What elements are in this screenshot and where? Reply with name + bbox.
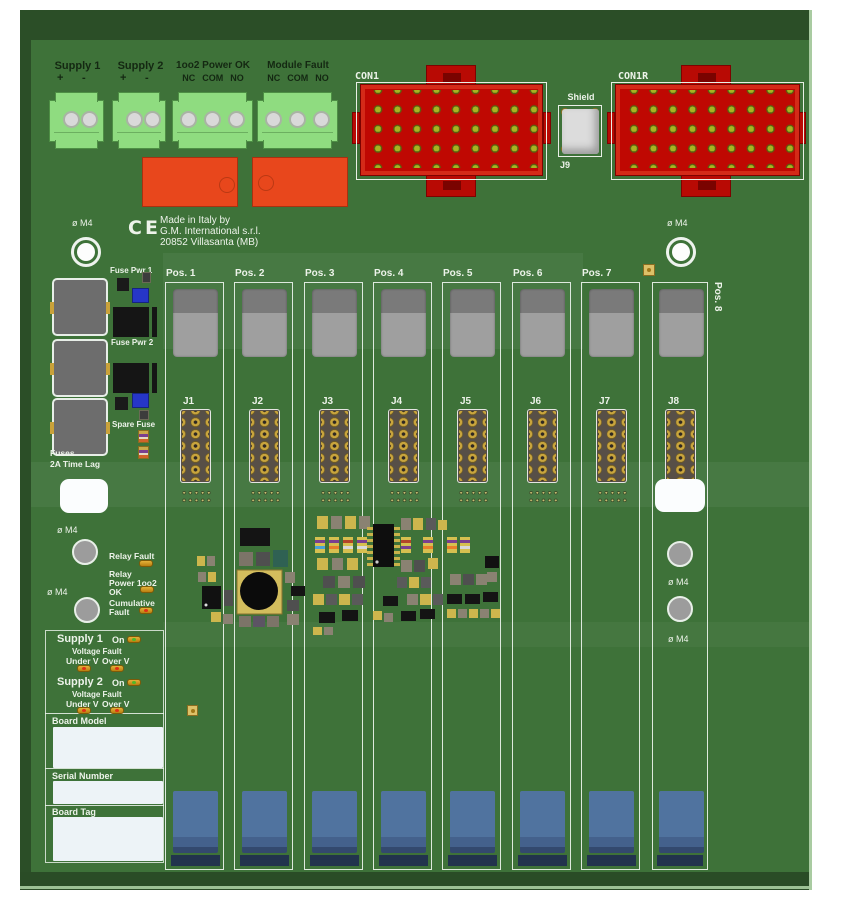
m4-label: ø M4 [72, 218, 93, 228]
terminal-pin[interactable] [228, 111, 245, 128]
terminal-pin[interactable] [126, 111, 143, 128]
con1-label: CON1 [355, 71, 379, 82]
relay-mark [258, 175, 274, 191]
supply1-on-led [127, 636, 141, 643]
relay-power-led [140, 586, 154, 593]
jack-connector[interactable] [388, 409, 419, 483]
spare-fuse-label: Spare Fuse [112, 420, 155, 429]
smd-group-left [197, 528, 305, 627]
terminal-label-module-fault: Module Fault [253, 60, 343, 71]
panel-separator [45, 768, 164, 769]
smd-group-mid [313, 516, 370, 635]
m4-label: ø M4 [47, 587, 68, 597]
terminal-pin[interactable] [204, 111, 221, 128]
jack-connector[interactable] [527, 409, 558, 483]
supply2-underv-led [77, 707, 91, 714]
ce-mark: CE [128, 217, 161, 239]
fuse-clip [152, 307, 157, 337]
serial-number-field [53, 781, 163, 804]
supply1-voltage-fault-label: Voltage Fault [72, 647, 122, 656]
supply2-on-led [127, 679, 141, 686]
relay-module [659, 289, 704, 357]
supply1-on-label: On [112, 635, 125, 645]
smd-resistor [138, 446, 149, 459]
smd-capacitor [132, 288, 149, 303]
smd-capacitor [132, 393, 149, 408]
position-column-7: J7 [581, 282, 640, 870]
terminal-label-power-ok: 1oo2 Power OK [168, 60, 258, 71]
jack-connector[interactable] [319, 409, 350, 483]
supply1-name: Supply 1 [57, 633, 103, 645]
terminal-block-supply2[interactable] [112, 100, 166, 142]
terminal-pin[interactable] [63, 111, 80, 128]
relay-module [589, 289, 634, 357]
pos-label-5: Pos. 5 [443, 268, 472, 279]
jack-connector[interactable] [457, 409, 488, 483]
supply2-on-label: On [112, 678, 125, 688]
mounting-hole-icon [72, 539, 98, 565]
jack-label: J5 [460, 396, 471, 407]
board-tag-label: Board Tag [52, 807, 96, 817]
terminal-block-module-fault[interactable] [257, 100, 338, 142]
terminal-pin-labels: NCCOMNO [173, 73, 253, 83]
pos-label-3: Pos. 3 [305, 268, 334, 279]
position-column-8: J8 [652, 282, 708, 870]
con1r-label: CON1R [618, 71, 648, 82]
jack-label: J4 [391, 396, 402, 407]
module-socket-base [448, 855, 497, 866]
terminal-block-power-ok[interactable] [172, 100, 253, 142]
terminal-pin-label: + [120, 72, 126, 84]
board-model-label: Board Model [52, 716, 107, 726]
terminal-pin[interactable] [289, 111, 306, 128]
module-socket-base [171, 855, 220, 866]
board-edge-left [20, 10, 31, 890]
con1-connector[interactable] [360, 84, 543, 176]
mounting-hole-icon [666, 237, 696, 267]
terminal-pin-label: - [82, 72, 86, 84]
module-socket[interactable] [312, 791, 357, 853]
module-socket-base [657, 855, 703, 866]
jack-pads [251, 411, 278, 481]
board-model-field [53, 727, 163, 768]
terminal-pin[interactable] [265, 111, 282, 128]
fuse-clip [113, 307, 149, 337]
module-socket[interactable] [589, 791, 634, 853]
relay-module [173, 289, 218, 357]
terminal-pin-label: + [57, 72, 63, 84]
relay-power-label-3: OK [109, 587, 122, 597]
con1r-connector[interactable] [615, 84, 800, 176]
smd-group-far-right [447, 537, 500, 618]
terminal-slot [54, 132, 99, 133]
terminal-block-supply1[interactable] [49, 100, 104, 142]
jack-connector[interactable] [596, 409, 627, 483]
solder-pads [458, 489, 488, 504]
terminal-pin-label: - [145, 72, 149, 84]
module-socket-base [518, 855, 567, 866]
supply1-overv-led [110, 665, 124, 672]
shield-ref: J9 [560, 160, 570, 170]
pos-label-4: Pos. 4 [374, 268, 403, 279]
maker-line1: Made in Italy by [160, 215, 230, 226]
serial-number-label: Serial Number [52, 771, 113, 781]
jack-pads [598, 411, 625, 481]
jack-label: J7 [599, 396, 610, 407]
maker-line3: 20852 Villasanta (MB) [160, 237, 258, 248]
power-relay [142, 157, 238, 207]
fuse-holder-1[interactable] [52, 278, 108, 336]
jack-pads [182, 411, 209, 481]
module-socket-base [379, 855, 428, 866]
con1-pins [368, 90, 544, 168]
solder-pads [250, 489, 280, 504]
module-socket[interactable] [520, 791, 565, 853]
smd-transistor [115, 397, 128, 410]
pos-label-1: Pos. 1 [166, 268, 195, 279]
module-socket[interactable] [381, 791, 426, 853]
jack-connector[interactable] [665, 409, 696, 483]
supply2-voltage-fault-label: Voltage Fault [72, 690, 122, 699]
shield-jumper[interactable] [562, 109, 599, 154]
cumulative-fault-led [139, 607, 153, 614]
smd-chip [139, 410, 149, 420]
fiducial-pad [643, 264, 655, 276]
terminal-slot [262, 132, 333, 133]
board-edge-right-highlight [809, 10, 812, 890]
power-relay [252, 157, 348, 207]
terminal-pin[interactable] [81, 111, 98, 128]
relay-module [520, 289, 565, 357]
smd-resistor [138, 430, 149, 443]
jack-pads [667, 411, 694, 481]
supply1-underv-led [77, 665, 91, 672]
mounting-hole-icon [71, 237, 101, 267]
jack-pads [390, 411, 417, 481]
m4-label: ø M4 [667, 218, 688, 228]
pos-label-2: Pos. 2 [235, 268, 264, 279]
mounting-hole-icon [667, 541, 693, 567]
terminal-slot [117, 132, 161, 133]
jack-label: J6 [530, 396, 541, 407]
pos-label-8: Pos. 8 [712, 282, 723, 311]
module-socket-base [310, 855, 359, 866]
jack-connector[interactable] [249, 409, 280, 483]
fuse-clip [152, 363, 157, 393]
module-socket[interactable] [659, 791, 704, 853]
module-socket-base [240, 855, 289, 866]
maker-line2: G.M. International s.r.l. [160, 226, 261, 237]
relay-module [450, 289, 495, 357]
module-socket[interactable] [242, 791, 287, 853]
jack-pads [529, 411, 556, 481]
relay-module [242, 289, 287, 357]
module-socket-base [587, 855, 636, 866]
solder-pads [320, 489, 350, 504]
solder-pads [181, 489, 211, 504]
shield-label: Shield [557, 92, 605, 102]
fuse-rating-line1: Fuses [50, 448, 75, 458]
supply2-overv-led [110, 707, 124, 714]
board-tag-field [53, 817, 163, 861]
smd-transistor [117, 278, 129, 291]
panel-separator [45, 805, 164, 806]
fuse-pwr2-label: Fuse Pwr 2 [111, 338, 153, 347]
relay-fault-led [139, 560, 153, 567]
module-socket[interactable] [450, 791, 495, 853]
smd-components-cluster [195, 510, 507, 642]
jack-label: J8 [668, 396, 679, 407]
jack-label: J2 [252, 396, 263, 407]
circuit-board: Supply 1 + - Supply 2 + - 1oo2 Power OK … [20, 10, 812, 890]
pcb-product-render: Supply 1 + - Supply 2 + - 1oo2 Power OK … [0, 0, 850, 914]
supply2-name: Supply 2 [57, 676, 103, 688]
module-socket[interactable] [173, 791, 218, 853]
label-window [655, 479, 705, 512]
solder-pads [528, 489, 558, 504]
position-column-6: J6 [512, 282, 571, 870]
pos-label-7: Pos. 7 [582, 268, 611, 279]
mounting-hole-icon [667, 596, 693, 622]
label-window [60, 479, 108, 513]
pos-label-6: Pos. 6 [513, 268, 542, 279]
jack-label: J1 [183, 396, 194, 407]
solder-pads [389, 489, 419, 504]
relay-module [312, 289, 357, 357]
board-edge-top [20, 10, 812, 40]
m4-label: ø M4 [668, 577, 689, 587]
mounting-hole-icon [74, 597, 100, 623]
jack-connector[interactable] [180, 409, 211, 483]
jack-pads [321, 411, 348, 481]
fuse-clip [113, 363, 149, 393]
fuse-rating-line2: 2A Time Lag [50, 459, 100, 469]
smd-chip [142, 272, 151, 283]
cumulative-fault-label-2: Fault [109, 607, 129, 617]
jack-label: J3 [322, 396, 333, 407]
board-edge-bottom-highlight [20, 886, 812, 889]
terminal-slot [177, 132, 248, 133]
terminal-pin-labels: NCCOMNO [258, 73, 338, 83]
m4-label: ø M4 [57, 525, 78, 535]
smd-ic-soic16 [367, 524, 400, 567]
terminal-pin[interactable] [144, 111, 161, 128]
relay-module [381, 289, 426, 357]
solder-pads [597, 489, 627, 504]
terminal-label-supply2: Supply 2 [108, 60, 173, 72]
fuse-holder-2[interactable] [52, 339, 108, 397]
terminal-pin[interactable] [180, 111, 197, 128]
m4-label: ø M4 [668, 634, 689, 644]
relay-mark [219, 177, 235, 193]
terminal-label-supply1: Supply 1 [45, 60, 110, 72]
con1r-pins [624, 90, 800, 168]
jack-pads [459, 411, 486, 481]
terminal-pin[interactable] [313, 111, 330, 128]
panel-separator [45, 713, 164, 714]
